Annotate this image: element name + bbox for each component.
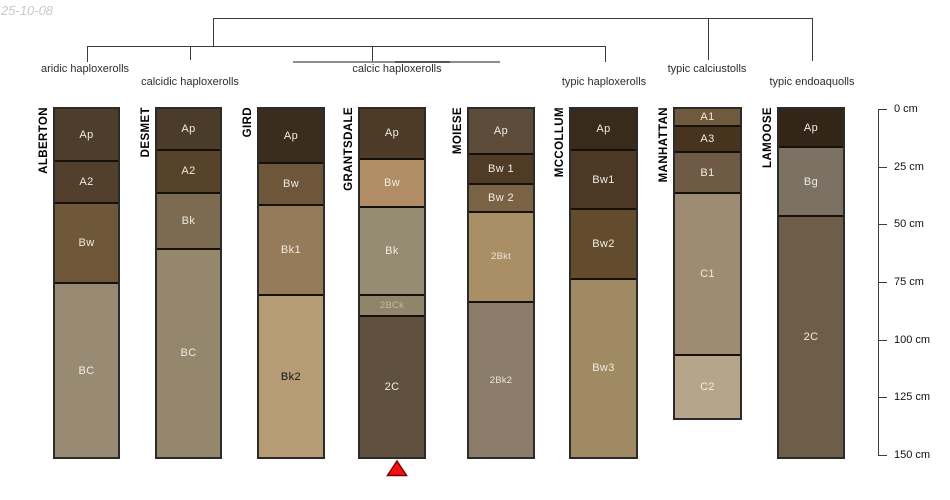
horizon-ap: Ap [779,109,843,148]
horizon-label: C1 [700,268,715,280]
horizon-2bk2: 2Bk2 [469,303,533,458]
tree-group-label: typic calciustolls [668,63,747,75]
horizon-label: Bw2 [592,238,615,250]
horizon-bw: Bw [360,160,424,208]
depth-axis-tick [878,167,887,168]
depth-axis-tick-label: 50 cm [894,218,924,230]
horizon-label: A2 [79,176,93,188]
horizon-bg: Bg [779,148,843,217]
depth-axis-tick [878,340,887,341]
horizon-ap: Ap [157,109,220,151]
tree-branch-hline [213,18,812,19]
horizon-2bck: 2BCk [360,296,424,317]
horizon-ap: Ap [571,109,636,151]
tree-branch-vline [812,18,813,61]
horizon-label: Ap [79,129,93,141]
horizon-label: Bw [78,237,94,249]
horizon-label: B1 [700,167,714,179]
depth-axis-tick [878,397,887,398]
profile-name-moiese: MOIESE [452,107,464,154]
profile-column-desmet: ApA2BkBC [155,107,222,459]
depth-axis-tick-label: 25 cm [894,161,924,173]
profile-column-alberton: ApA2BwBC [53,107,120,459]
horizon-label: 2BCk [380,300,404,311]
horizon-bw3: Bw3 [571,280,636,458]
triangle-shape [388,461,407,476]
horizon-label: Ap [284,130,298,142]
horizon-c1: C1 [675,194,740,355]
profile-column-lamoose: ApBg2C [777,107,845,459]
horizon-label: Bk [385,245,399,257]
group-marker-triangle-icon [386,459,408,477]
tree-group-label: typic haploxerolls [562,76,646,88]
horizon-label: Bw 2 [488,192,514,204]
depth-axis-tick-label: 0 cm [894,103,918,115]
horizon-bw2: Bw 2 [469,185,533,213]
tree-branch-vline [708,18,709,60]
soil-profile-figure: 25-10-08 aridic haploxerollscalcidic hap… [0,0,950,500]
horizon-label: Bw [384,177,400,189]
depth-axis-tick [878,282,887,283]
profile-column-moiese: ApBw 1Bw 22Bkt2Bk2 [467,107,535,459]
tree-group-label: calcic haploxerolls [352,63,441,75]
horizon-bc: BC [55,284,118,457]
profile-name-grantsdale: GRANTSDALE [343,107,355,191]
tree-group-label: typic endoaquolls [769,76,854,88]
depth-axis-tick-label: 125 cm [894,391,930,403]
tree-branch-vline [213,18,214,46]
horizon-2bkt: 2Bkt [469,213,533,303]
horizon-b1: B1 [675,153,740,195]
profile-column-mccollum: ApBw1Bw2Bw3 [569,107,638,459]
depth-axis-tick-label: 150 cm [894,449,930,461]
horizon-label: 2Bkt [491,251,511,262]
horizon-label: Bk2 [281,371,301,383]
profile-name-gird: GIRD [242,107,254,137]
depth-axis-tick-label: 75 cm [894,276,924,288]
date-label: 25-10-08 [1,3,53,18]
horizon-label: A3 [700,133,714,145]
profile-column-grantsdale: ApBwBk2BCk2C [358,107,426,459]
depth-axis-tick [878,109,887,110]
horizon-2c: 2C [779,217,843,457]
horizon-ap: Ap [259,109,323,164]
horizon-bw1: Bw 1 [469,155,533,185]
horizon-bw: Bw [55,204,118,285]
horizon-label: 2Bk2 [490,375,512,386]
horizon-ap: Ap [55,109,118,162]
horizon-a2: A2 [55,162,118,204]
horizon-bk: Bk [157,194,220,249]
profile-name-mccollum: MCCOLLUM [554,107,566,177]
horizon-bk2: Bk2 [259,296,323,457]
profile-name-lamoose: LAMOOSE [762,107,774,168]
horizon-label: Bg [804,176,818,188]
horizon-label: Ap [596,123,610,135]
horizon-label: Ap [494,125,508,137]
horizon-bk1: Bk1 [259,206,323,296]
horizon-label: Bk1 [281,244,301,256]
profile-name-manhattan: MANHATTAN [658,107,670,182]
tree-group-label: calcidic haploxerolls [141,76,239,88]
horizon-a2: A2 [157,151,220,195]
horizon-ap: Ap [469,109,533,155]
horizon-bk: Bk [360,208,424,296]
horizon-label: 2C [385,381,400,393]
horizon-bw: Bw [259,164,323,206]
depth-axis-tick [878,224,887,225]
tree-branch-vline [372,46,373,61]
horizon-label: 2C [804,331,819,343]
horizon-label: Bw [283,178,299,190]
horizon-ap: Ap [360,109,424,160]
profile-column-gird: ApBwBk1Bk2 [257,107,325,459]
tree-branch-vline [87,46,88,62]
tree-branch-hline [87,46,605,47]
horizon-label: BC [78,365,94,377]
horizon-c2: C2 [675,356,740,418]
depth-axis-tick [878,455,887,456]
horizon-label: Ap [804,122,818,134]
tree-group-label: aridic haploxerolls [41,63,129,75]
horizon-bw1: Bw1 [571,151,636,211]
horizon-label: Ap [181,123,195,135]
horizon-label: BC [180,347,196,359]
horizon-label: C2 [700,381,715,393]
horizon-label: Bk [182,215,196,227]
tree-branch-vline [605,46,606,62]
horizon-bc: BC [157,250,220,458]
profile-column-manhattan: A1A3B1C1C2 [673,107,742,420]
horizon-label: A1 [700,111,714,123]
horizon-label: Ap [385,127,399,139]
horizon-bw2: Bw2 [571,210,636,279]
horizon-label: A2 [181,165,195,177]
horizon-a1: A1 [675,109,740,127]
horizon-label: Bw 1 [488,163,514,175]
horizon-label: Bw3 [592,362,615,374]
tree-branch-vline [190,46,191,60]
horizon-2c: 2C [360,317,424,458]
horizon-label: Bw1 [592,174,615,186]
profile-name-desmet: DESMET [140,107,152,157]
depth-axis-tick-label: 100 cm [894,334,930,346]
profile-name-alberton: ALBERTON [38,107,50,174]
horizon-a3: A3 [675,127,740,152]
